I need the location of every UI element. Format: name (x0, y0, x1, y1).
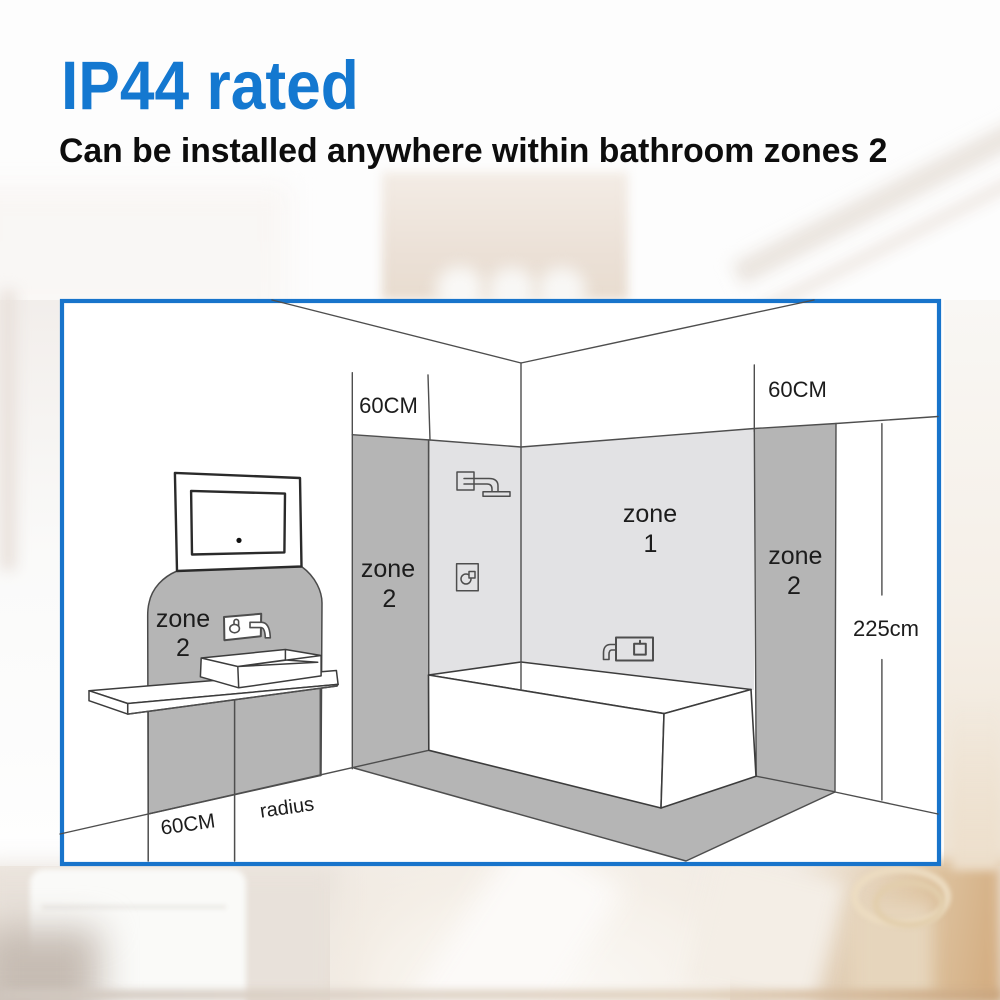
svg-text:60CM: 60CM (359, 393, 418, 418)
svg-text:zone: zone (361, 555, 415, 583)
svg-text:zone: zone (156, 605, 210, 633)
svg-text:zone: zone (768, 542, 822, 570)
svg-text:2: 2 (382, 585, 396, 613)
svg-text:zone: zone (623, 500, 677, 528)
svg-text:2: 2 (176, 634, 190, 662)
svg-text:225cm: 225cm (853, 616, 919, 641)
svg-text:1: 1 (644, 530, 658, 558)
svg-text:2: 2 (787, 572, 801, 600)
svg-text:60CM: 60CM (768, 377, 827, 402)
